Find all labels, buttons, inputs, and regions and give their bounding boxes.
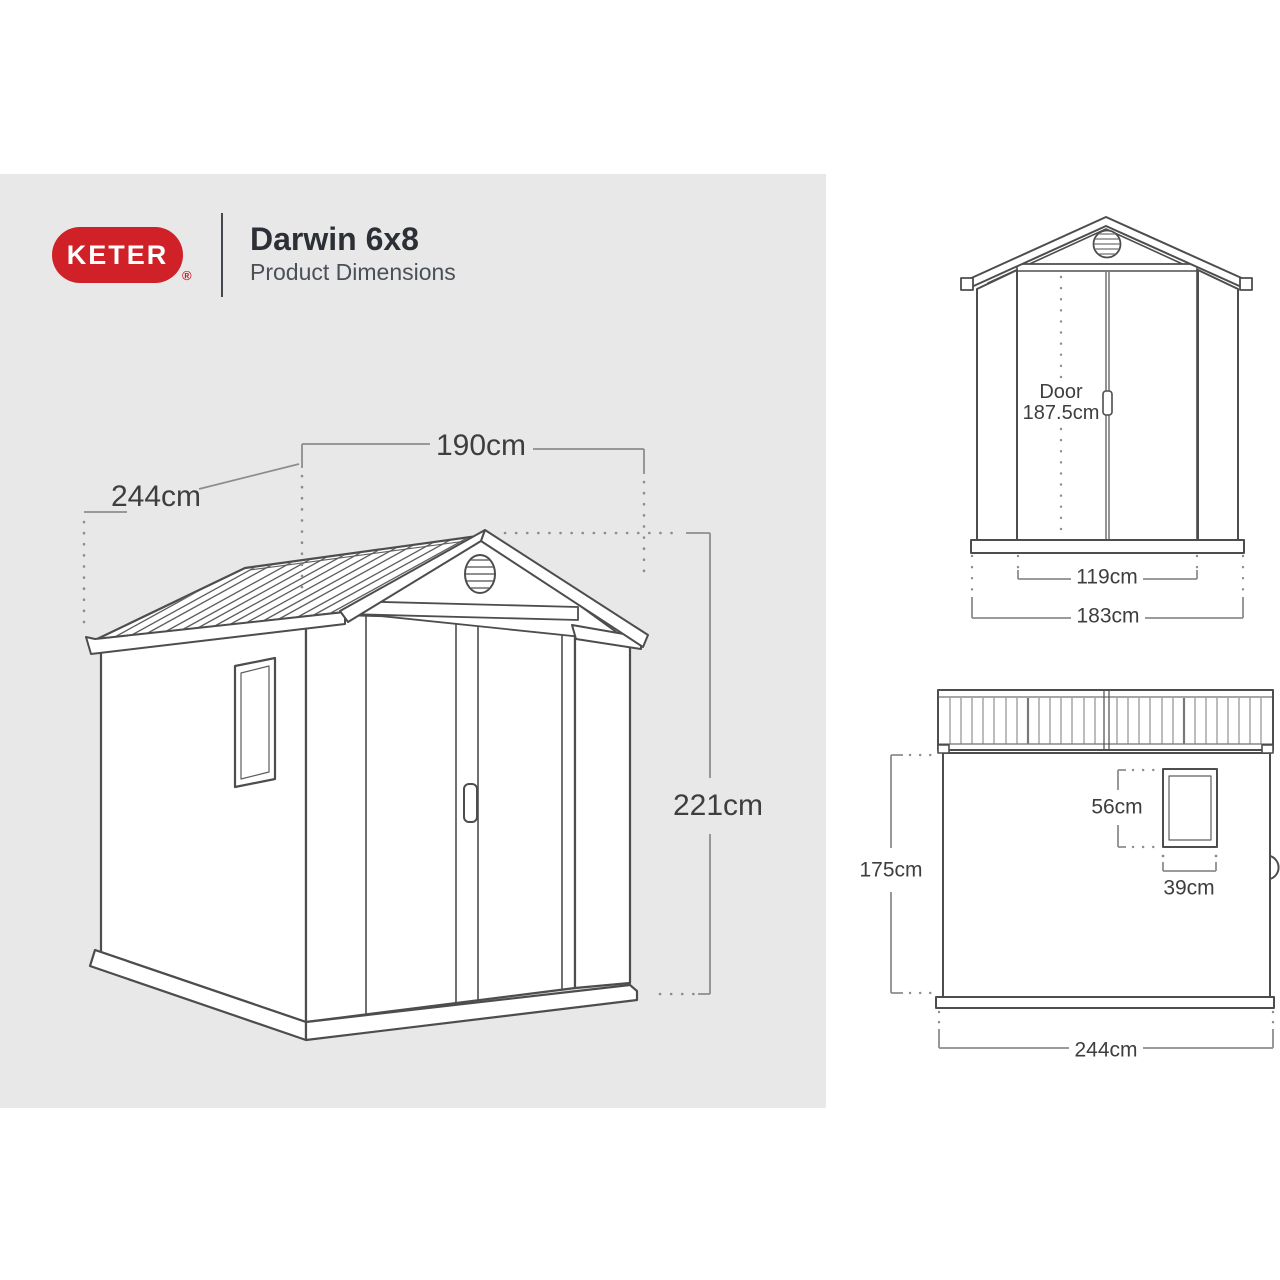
side-roof-cap-right	[1262, 745, 1273, 753]
shed-side-window	[235, 658, 275, 787]
front-door-handle-icon	[1103, 391, 1112, 415]
front-roof-cap-left	[961, 278, 973, 290]
dim-label-window-width: 39cm	[1163, 878, 1214, 899]
front-base	[971, 540, 1244, 553]
side-handle-bump-icon	[1270, 856, 1279, 879]
front-gable-vent-icon	[1092, 231, 1122, 258]
side-roof-cap-left	[938, 745, 949, 753]
side-elevation-drawing	[936, 690, 1279, 1008]
page: KETER ® Darwin 6x8 Product Dimensions 19…	[0, 0, 1280, 1280]
dim-label-overall-width: 183cm	[1076, 606, 1139, 627]
dim-label-height: 221cm	[673, 791, 763, 821]
front-roof-cap-right	[1240, 278, 1252, 290]
dim-label-width: 190cm	[436, 431, 526, 461]
keter-logo: KETER	[52, 227, 183, 283]
side-wall	[943, 753, 1270, 997]
product-subtitle: Product Dimensions	[250, 259, 456, 286]
diagram-canvas	[0, 0, 1280, 1280]
door-handle-icon	[464, 784, 477, 822]
product-title: Darwin 6x8	[250, 221, 419, 258]
dim-label-door-width: 119cm	[1076, 567, 1137, 588]
side-window	[1163, 769, 1217, 847]
side-roof-band	[938, 690, 1273, 750]
header-divider	[221, 213, 223, 297]
keter-brand-text: KETER	[67, 240, 169, 271]
side-base	[936, 997, 1274, 1008]
front-left-column	[977, 270, 1017, 543]
dim-label-window-height: 56cm	[1091, 797, 1142, 818]
dim-label-wall-height: 175cm	[859, 860, 922, 881]
front-elevation-drawing	[961, 217, 1252, 553]
dim-label-door-height: 187.5cm	[1023, 403, 1100, 423]
front-right-column	[1198, 270, 1238, 543]
perspective-drawing	[80, 526, 648, 1040]
dim-label-depth: 244cm	[111, 482, 201, 512]
shed-right-column	[575, 637, 630, 988]
shed-front-wall	[306, 614, 575, 1022]
dim-label-door: Door	[1039, 382, 1082, 402]
registered-mark-icon: ®	[182, 268, 192, 283]
dim-label-side-depth: 244cm	[1074, 1040, 1137, 1061]
